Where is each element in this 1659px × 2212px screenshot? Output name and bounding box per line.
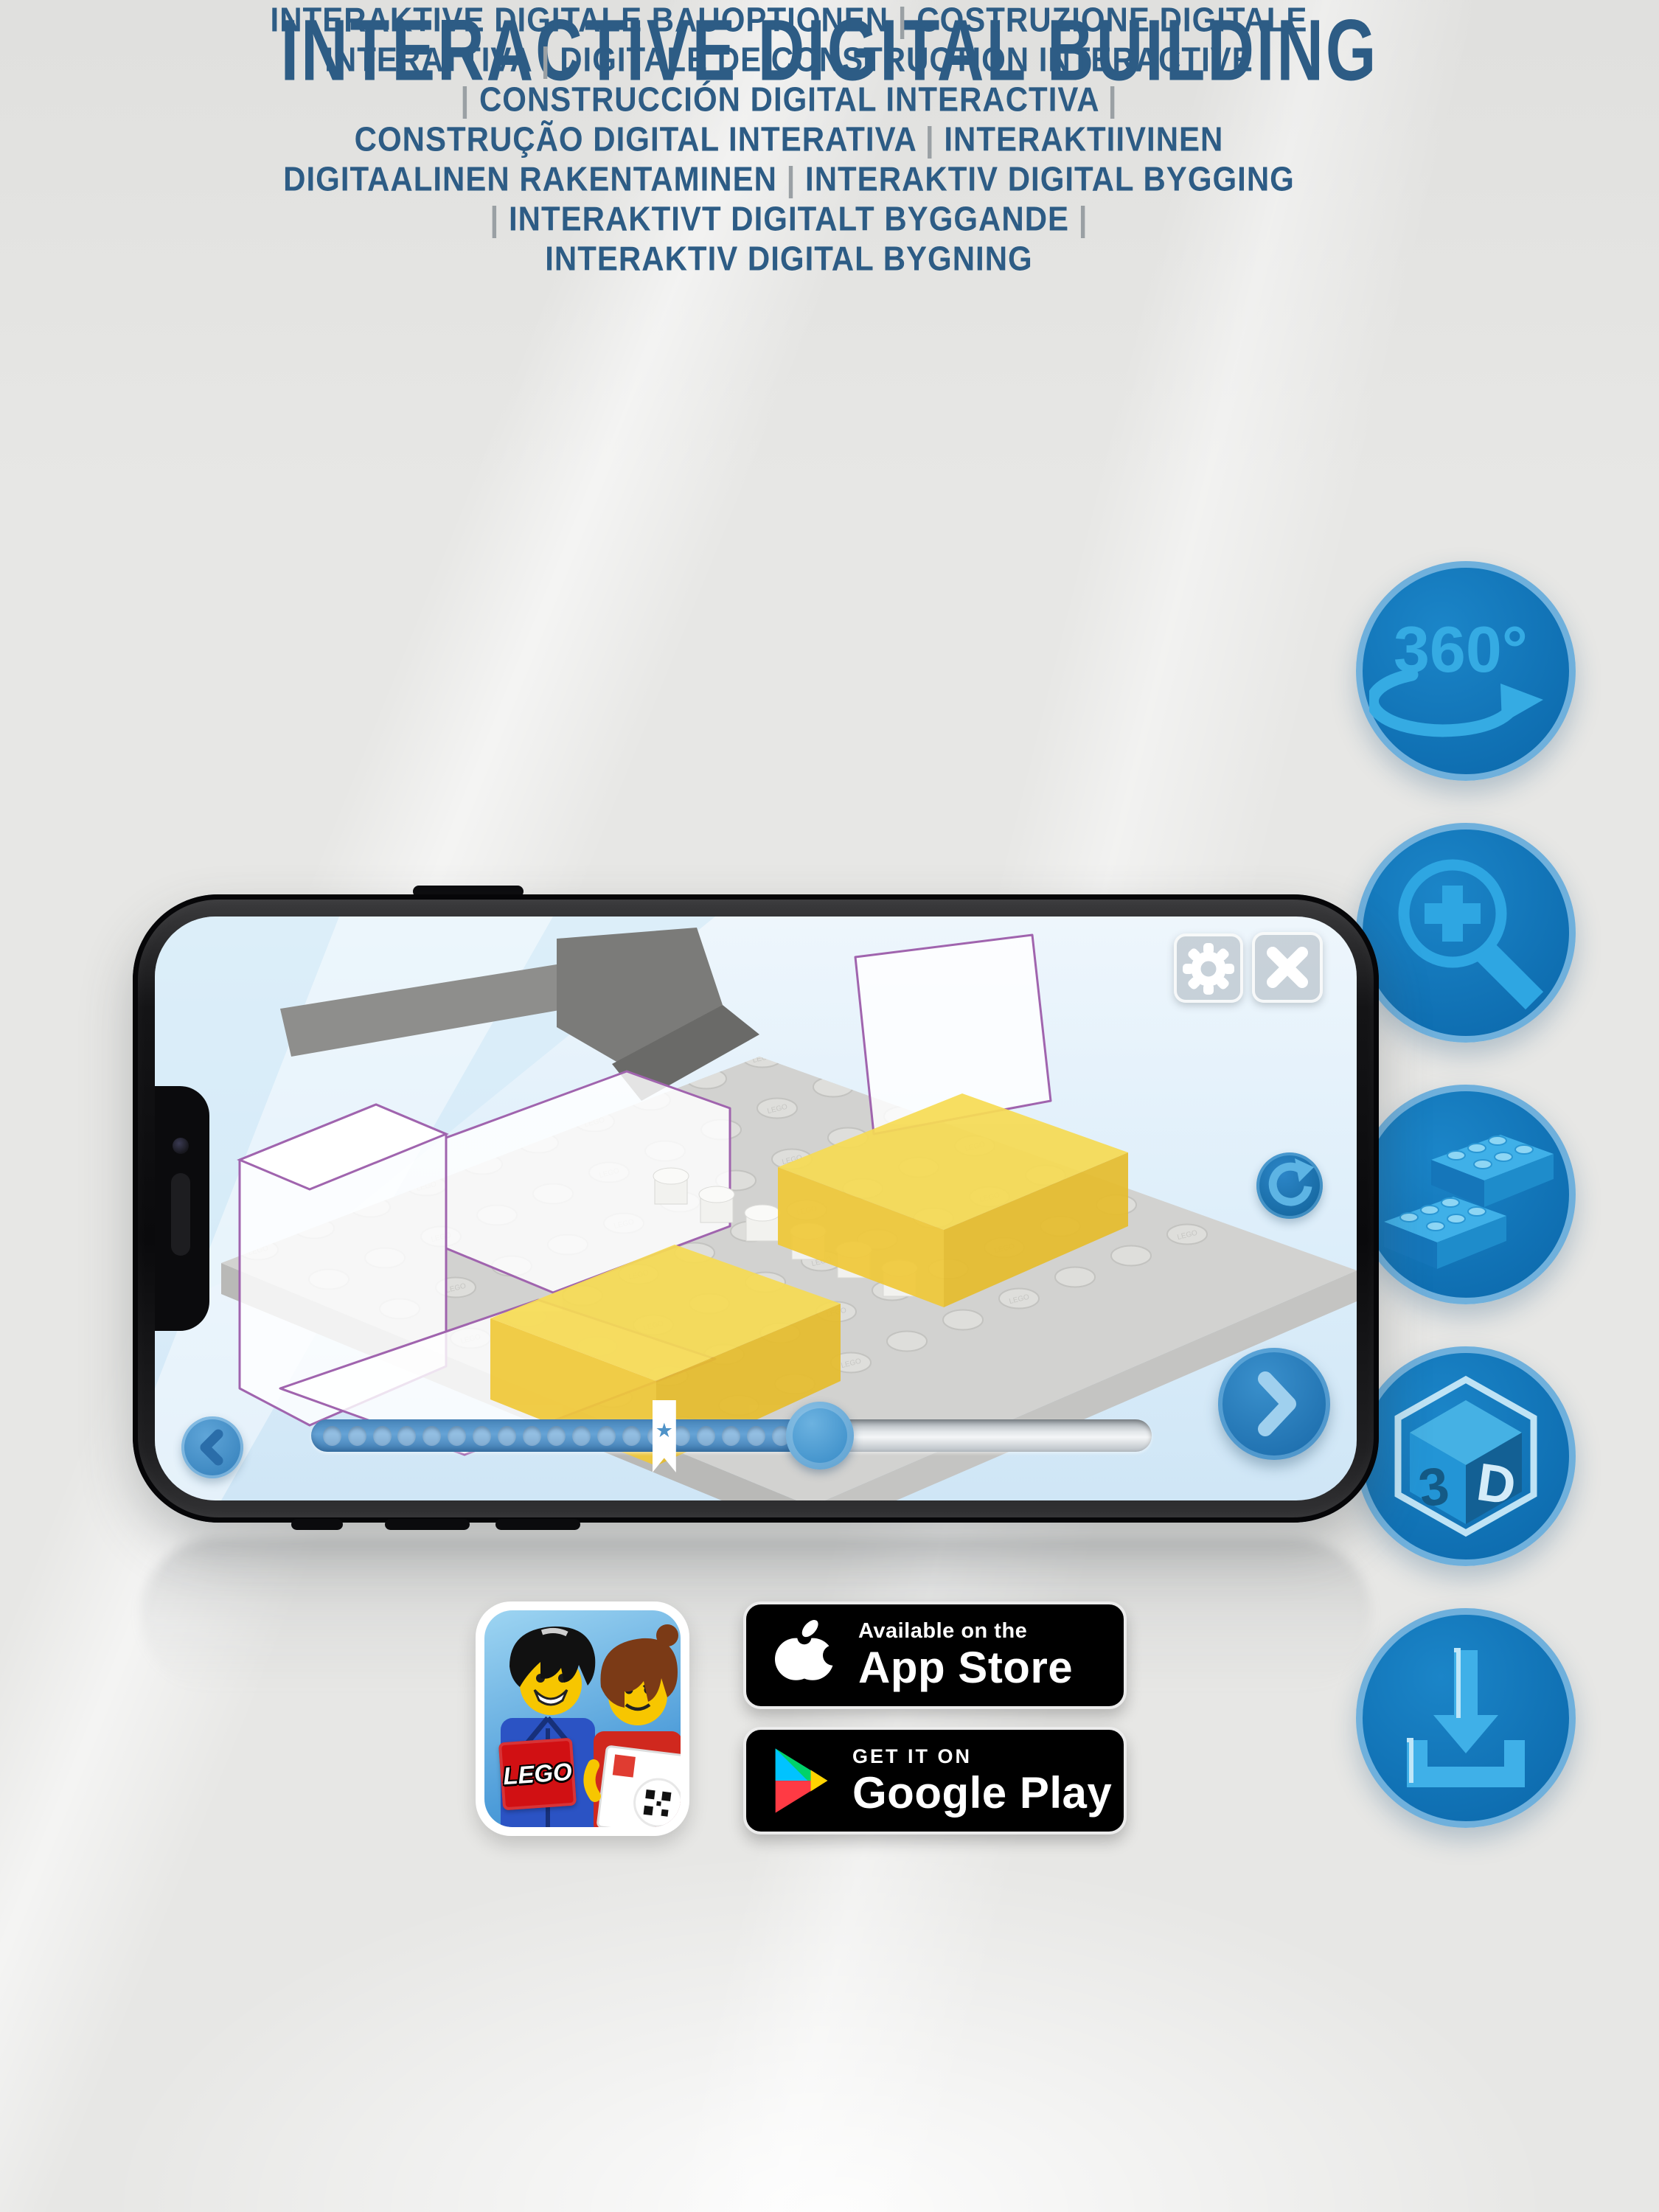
- progress-step-dot: [373, 1426, 392, 1446]
- progress-step-dot: [697, 1426, 715, 1446]
- progress-step-dot: [523, 1426, 541, 1446]
- progress-fill: [311, 1419, 849, 1452]
- brick-icon: [1374, 1110, 1558, 1279]
- previous-step-button[interactable]: [181, 1416, 243, 1478]
- subtitle-line: | CONSTRUCCIÓN DIGITAL INTERACTIVA |: [0, 77, 1578, 121]
- download-icon: [1377, 1630, 1554, 1806]
- feature-brick-badge: [1356, 1085, 1576, 1304]
- lego-app-icon-art: LEGO: [484, 1610, 681, 1827]
- 360-rotation-icon: 360°: [1369, 574, 1562, 768]
- subtitle-line: CONSTRUÇÃO DIGITAL INTERATIVA | INTERAKT…: [0, 117, 1578, 161]
- subtitle-line: DIGITAALINEN RAKENTAMINEN | INTERAKTIV D…: [0, 157, 1578, 201]
- phone-mockup: LEGOLEGOLEGOLEGOLEGOLEGOLEGOLEGOLEGOLEGO…: [133, 894, 1379, 1523]
- subtitle-line: INTERATTIVA | DIGITALE DE CONSTRUCTION I…: [0, 38, 1578, 81]
- rotate-view-button[interactable]: [1256, 1152, 1323, 1219]
- phone-side-button: [291, 1519, 343, 1530]
- subtitle-line: | INTERAKTIVT DIGITALT BYGGANDE |: [0, 197, 1578, 240]
- google-play-label: Google Play: [852, 1769, 1112, 1818]
- app-store-badge[interactable]: Available on the App Store: [743, 1601, 1127, 1709]
- progress-step-dot: [422, 1426, 441, 1446]
- progress-step-dot: [498, 1426, 516, 1446]
- subtitle-line: INTERAKTIV DIGITAL BYGNING: [0, 237, 1578, 280]
- close-button[interactable]: [1252, 932, 1323, 1003]
- phone-screen: LEGOLEGOLEGOLEGOLEGOLEGOLEGOLEGOLEGOLEGO…: [155, 917, 1357, 1500]
- chevron-left-icon: [181, 1416, 243, 1478]
- settings-button[interactable]: [1174, 933, 1243, 1003]
- progress-step-dot: [448, 1426, 466, 1446]
- progress-step-dot: [547, 1426, 566, 1446]
- feature-360-badge: 360°: [1356, 561, 1576, 781]
- rotate-cw-icon: [1256, 1152, 1323, 1219]
- progress-step-dot: [473, 1426, 491, 1446]
- progress-step-dot: [323, 1426, 341, 1446]
- google-play-tagline: GET IT ON: [852, 1744, 1112, 1769]
- app-store-tagline: Available on the: [858, 1618, 1073, 1644]
- front-camera: [173, 1138, 189, 1154]
- gear-icon: [1177, 936, 1240, 1000]
- subtitle-line: INTERAKTIVE DIGITALE BAUOPTIONEN | COSTR…: [0, 0, 1578, 42]
- 3d-view-icon: 3 D: [1377, 1368, 1554, 1545]
- lego-app-icon[interactable]: LEGO: [476, 1601, 689, 1836]
- app-store-label: App Store: [858, 1644, 1073, 1692]
- progress-step-dot: [572, 1426, 591, 1446]
- zoom-in-icon: [1377, 844, 1554, 1021]
- cube-letter-d: D: [1473, 1453, 1520, 1516]
- phone-volume-down-button: [495, 1519, 580, 1530]
- progress-step-dot: [397, 1426, 416, 1446]
- progress-step-dot: [722, 1426, 740, 1446]
- lego-logo: LEGO: [498, 1738, 577, 1811]
- next-step-button[interactable]: [1218, 1348, 1330, 1460]
- phone-notch: [155, 1086, 209, 1331]
- progress-step-dot: [747, 1426, 765, 1446]
- progress-handle[interactable]: [786, 1402, 854, 1470]
- feature-download-badge: [1356, 1608, 1576, 1828]
- close-icon: [1255, 935, 1320, 1000]
- apple-icon: [765, 1617, 842, 1694]
- google-play-badge[interactable]: GET IT ON Google Play: [743, 1727, 1127, 1834]
- earpiece-speaker: [171, 1173, 190, 1256]
- build-progress-slider[interactable]: ★: [311, 1419, 1152, 1452]
- google-play-icon: [765, 1742, 836, 1819]
- progress-step-dot: [622, 1426, 641, 1446]
- subtitle-lines: INTERAKTIVE DIGITALE BAUOPTIONEN | COSTR…: [0, 0, 1578, 279]
- progress-step-dot: [348, 1426, 366, 1446]
- lego-3d-scene: LEGOLEGOLEGOLEGOLEGOLEGOLEGOLEGOLEGOLEGO…: [155, 917, 1357, 1500]
- progress-step-dot: [597, 1426, 616, 1446]
- feature-3d-badge: 3 D: [1356, 1346, 1576, 1566]
- phone-volume-up-button: [385, 1519, 470, 1530]
- feature-zoom-badge: [1356, 823, 1576, 1043]
- chevron-right-icon: [1218, 1348, 1330, 1460]
